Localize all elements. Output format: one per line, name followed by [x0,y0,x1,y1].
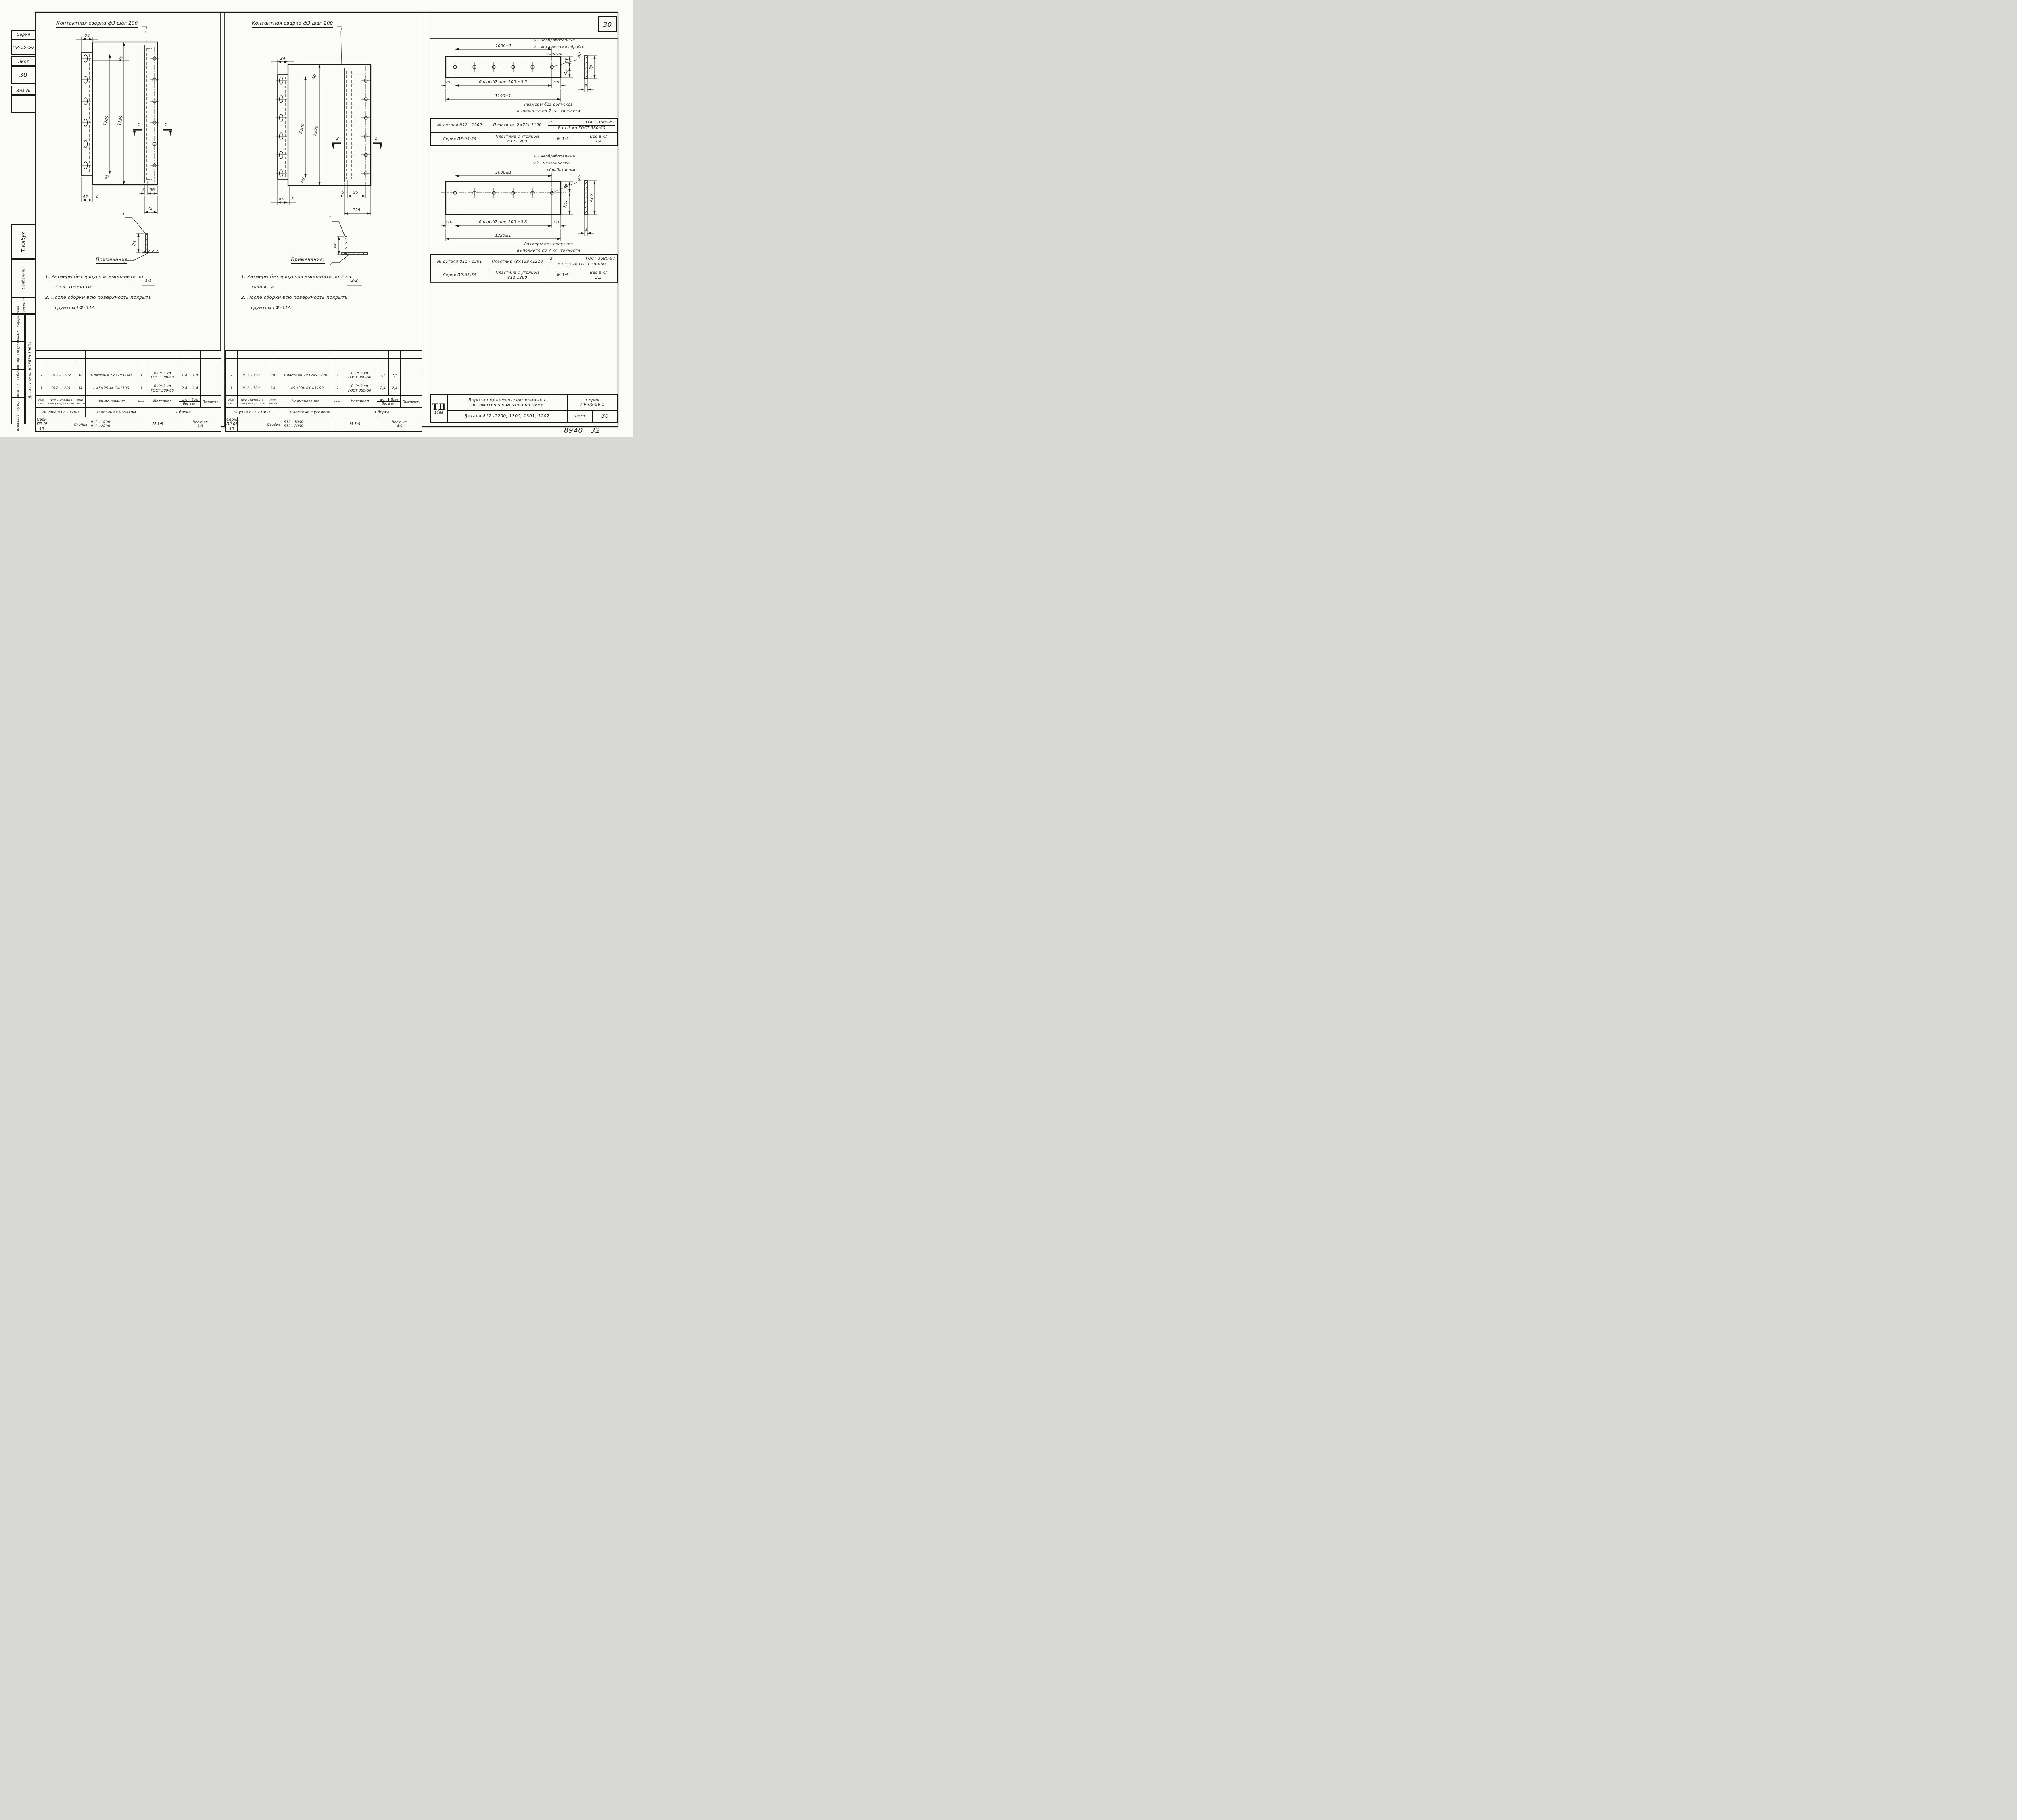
dim-label: 6 отв ф7 шаг 200 ±0,5 [479,80,527,84]
assembly-name: Пластина с уголком812-1200 [489,133,546,145]
notes-title: Примечания [96,257,128,264]
dim-label: 1220 [313,125,319,136]
dim-label: 110 [445,220,452,225]
legend-line: ▽ - механически обрабо- [533,44,585,51]
organization-logo: ТД 1965 [431,395,448,422]
dim-label: 1000±1 [495,44,512,48]
section-mark: 1 [138,123,140,127]
material-spec: -2ГОСТ 3680-57 В Ст.3 кп ГОСТ 380-60 [546,255,617,269]
assembly-name: Пластина с уголком812-1300 [489,269,546,282]
dim-label: 44 [563,69,570,76]
drawing-sheet: 24 45 1100 1190 1 1 45 2 45 [0,0,633,437]
panel2-weld-note: Контактная сварка ф3 шаг 200 [252,20,333,28]
series-row: Серия ПР-05-56 Стойка 812 - 1000812 - 20… [226,417,422,432]
dim-label: 45 [83,195,88,199]
section-mark: 1 [165,123,167,127]
dim-label: 24 [132,240,138,246]
table-row: 1812 - 1201 34L 45×28×4 С=1100 1 В Ст.3 … [36,382,221,396]
sidebar-series-value: ПР-05-56 [11,40,35,55]
weight: Вес в кг1,4 [580,133,617,145]
note-line: грунтом ГФ-032. [55,305,178,310]
dim-label: 1190 [117,115,124,126]
part-number: № детали 812 - 1301 [431,255,489,269]
sheet-label-cell: Лист [568,411,593,422]
dim-label: 95 [445,80,451,85]
note-line: 7 кл. точности. [55,284,178,289]
legend-line: ≈ - необработанные [533,38,575,43]
weight: Вес в кг2,5 [580,269,617,282]
stamp-date-cell: Дата выпуска НОЯБРЬ 1965 г. [25,314,35,424]
part-name: Пластина -2×72×1190 [489,119,546,133]
dim-label: 6 отв ф7 шаг 200 ±0,8 [479,220,527,224]
dim-label: 45 [279,197,284,202]
dim-label: 6 [342,190,344,195]
dim-label: 1100 [103,115,110,126]
panel2-notes: Примечания: 1. Размеры без допусков выпо… [241,257,374,310]
dim-label: 24 [85,34,90,38]
table-row: 2812 - 1301 30Пластина 2×129×1220 1 В Ст… [226,369,422,382]
boxA-tolerance-note: Размеры без допусковвыполните по 7 кл. т… [504,102,593,115]
boxA-roughness-legend: ≈ - необработанные ▽ - механически обраб… [533,37,585,58]
dim-label: 2 [96,194,98,199]
dim-label: 95 [554,80,560,85]
dim-label: 2 [291,197,294,201]
page-number-box: 30 [598,16,617,32]
stamp-name: Ондровский [17,334,20,355]
dim-label: 60 [311,74,318,80]
legend-line: ≈ - необработанные [533,154,575,159]
dim-label: 101 [562,200,570,209]
dim-label: 1100 [299,123,305,134]
sheet-number-cell: 30 [593,411,617,422]
stamp-name: Пузырькова [17,390,20,411]
spec-table-left: 2812 - 1202 30Пластина 2×72×1190 1 В Ст.… [35,350,221,432]
boxB-tolerance-note: Размеры без допусковвыполните по 7 кл. т… [504,241,593,254]
dim-label: 45 [118,56,124,62]
assembly-row: № узла 812 - 1300 Пластина с уголком Сбо… [226,408,422,417]
stamp-name: Подоровский [17,306,20,329]
stamp-name: Собачкин [17,363,20,380]
table-header-row: №№ поз. №№ стандарта или узла, детали №№… [36,396,221,408]
note-line: грунтом ГФ-032. [251,305,374,310]
dim-label: 1220±1 [495,234,511,238]
legend-line: танные [547,51,585,58]
stamp-signature-cell: Т.Кабул [11,224,35,259]
title-block: ТД 1965 Ворота подъемно- секционные савт… [430,394,618,423]
drawing-title: Ворота подъемно- секционные савтоматичес… [448,395,567,411]
note-line: 2. После сборки всю поверхность покрыть [45,295,178,300]
dim-label: 1000±1 [495,171,512,175]
checker-name: Солбачкин [21,267,25,290]
table-row: 2812 - 1202 30Пластина 2×72×1190 1 В Ст.… [36,369,221,382]
boxA-table: № детали 812 - 1202 Пластина -2×72×1190 … [430,118,618,146]
panel1-weld-note: Контактная сварка ф3 шаг 200 [56,20,138,28]
leader-label: 1 [122,212,125,217]
dim-label: 38 [150,188,155,192]
panel1-notes: Примечания 1. Размеры без допусков выпол… [45,257,178,310]
checker-label: Проверил [22,297,25,315]
note-line: точности. [251,284,374,289]
dim-label: 24 [332,243,338,249]
table-header-row: №№ поз. №№ стандарта или узла, детали №№… [226,396,422,408]
material-spec: -2ГОСТ 3680-57 В ст.3 кп ГОСТ 380-60 [546,119,617,133]
sidebar-series-label: Серия [11,30,35,40]
series-row: Серия ПР-05-56 Стойка 812 - 1000812 - 20… [36,417,221,432]
notes-title: Примечания: [291,257,324,264]
scale: М 1:5 [546,269,580,282]
series: Серия ПР-05-56 [431,133,489,145]
sidebar-inv-label: Инв № [11,86,35,95]
note-line: 1. Размеры без допусков выполнить по 7 к… [241,274,374,279]
boxB-drawing: 1000±1 28 101 ф7 129 2 [441,171,597,241]
sidebar-empty-box [11,95,35,113]
legend-line: обработанные [547,167,576,174]
dim-label: 72 [148,207,153,211]
part-name: Пластина -2×129×1220 [489,255,546,269]
dim-label: ф7 [576,175,583,182]
legend-line: ▽3 - механически [533,160,576,167]
drawing-subtitle: Детали 812 -1200, 1300, 1301, 1202. [448,411,567,422]
note-line: 2. После сборки всю поверхность покрыть [241,295,374,300]
panel2-drawing: 24 60 1100 1220 2 2 45 2 60 [271,27,382,285]
stamp-role: Исполнит. [17,413,20,431]
boxB-table: № детали 812 - 1301 Пластина -2×129×1220… [430,254,618,282]
section-mark: 2 [336,136,339,141]
dim-label: 24 [280,56,286,61]
dim-label: 2 [585,227,587,232]
signature: Т.Кабул [21,231,26,252]
dim-label: 95 [353,190,359,195]
note-line: 1. Размеры без допусков выполнить по [45,274,178,279]
assembly-row: № узла 812 - 1200 Пластина с уголком Сбо… [36,408,221,417]
sidebar-sheet-label: Лист [11,56,35,66]
dim-label: 129 [589,194,595,202]
document-number: 8940 32 [564,427,600,435]
boxB-roughness-legend: ≈ - необработанные ▽3 - механически обра… [533,153,576,174]
dim-label: 45 [104,174,110,180]
series: Серия ПР-05-56 [431,269,489,282]
dim-label: 60 [300,177,306,184]
dim-label: 110 [553,220,560,225]
sidebar-sheet-value: 30 [11,66,35,84]
stamp-checker-label-cell: Проверил [11,298,35,314]
series-cell: СерияПР-05-56.1 [568,395,617,411]
part-number: № детали 812 - 1202 [431,119,489,133]
dim-label: 129 [353,208,360,212]
dim-label: 6 [142,188,145,192]
scale: М 1:5 [546,133,580,145]
section-mark: 2 [375,136,377,141]
panel1-drawing: 24 45 1100 1190 1 1 45 2 45 [75,27,172,285]
stamp-row: Исполнит. Пузырькова [11,397,25,424]
issue-date: Дата выпуска НОЯБРЬ 1965 г. [28,340,32,399]
dim-label: 1190±1 [495,94,511,98]
leader-label: 1 [329,216,331,220]
table-row: 1812 - 1201 34L 45×28×4 С=1100 1 В Ст.3 … [226,382,422,396]
dim-label: 72 [589,65,595,71]
stamp-checker-name-cell: Солбачкин [11,259,35,298]
spec-table-middle: 2812 - 1301 30Пластина 2×129×1220 1 В Ст… [225,350,422,432]
dim-label: 2 [585,84,587,88]
